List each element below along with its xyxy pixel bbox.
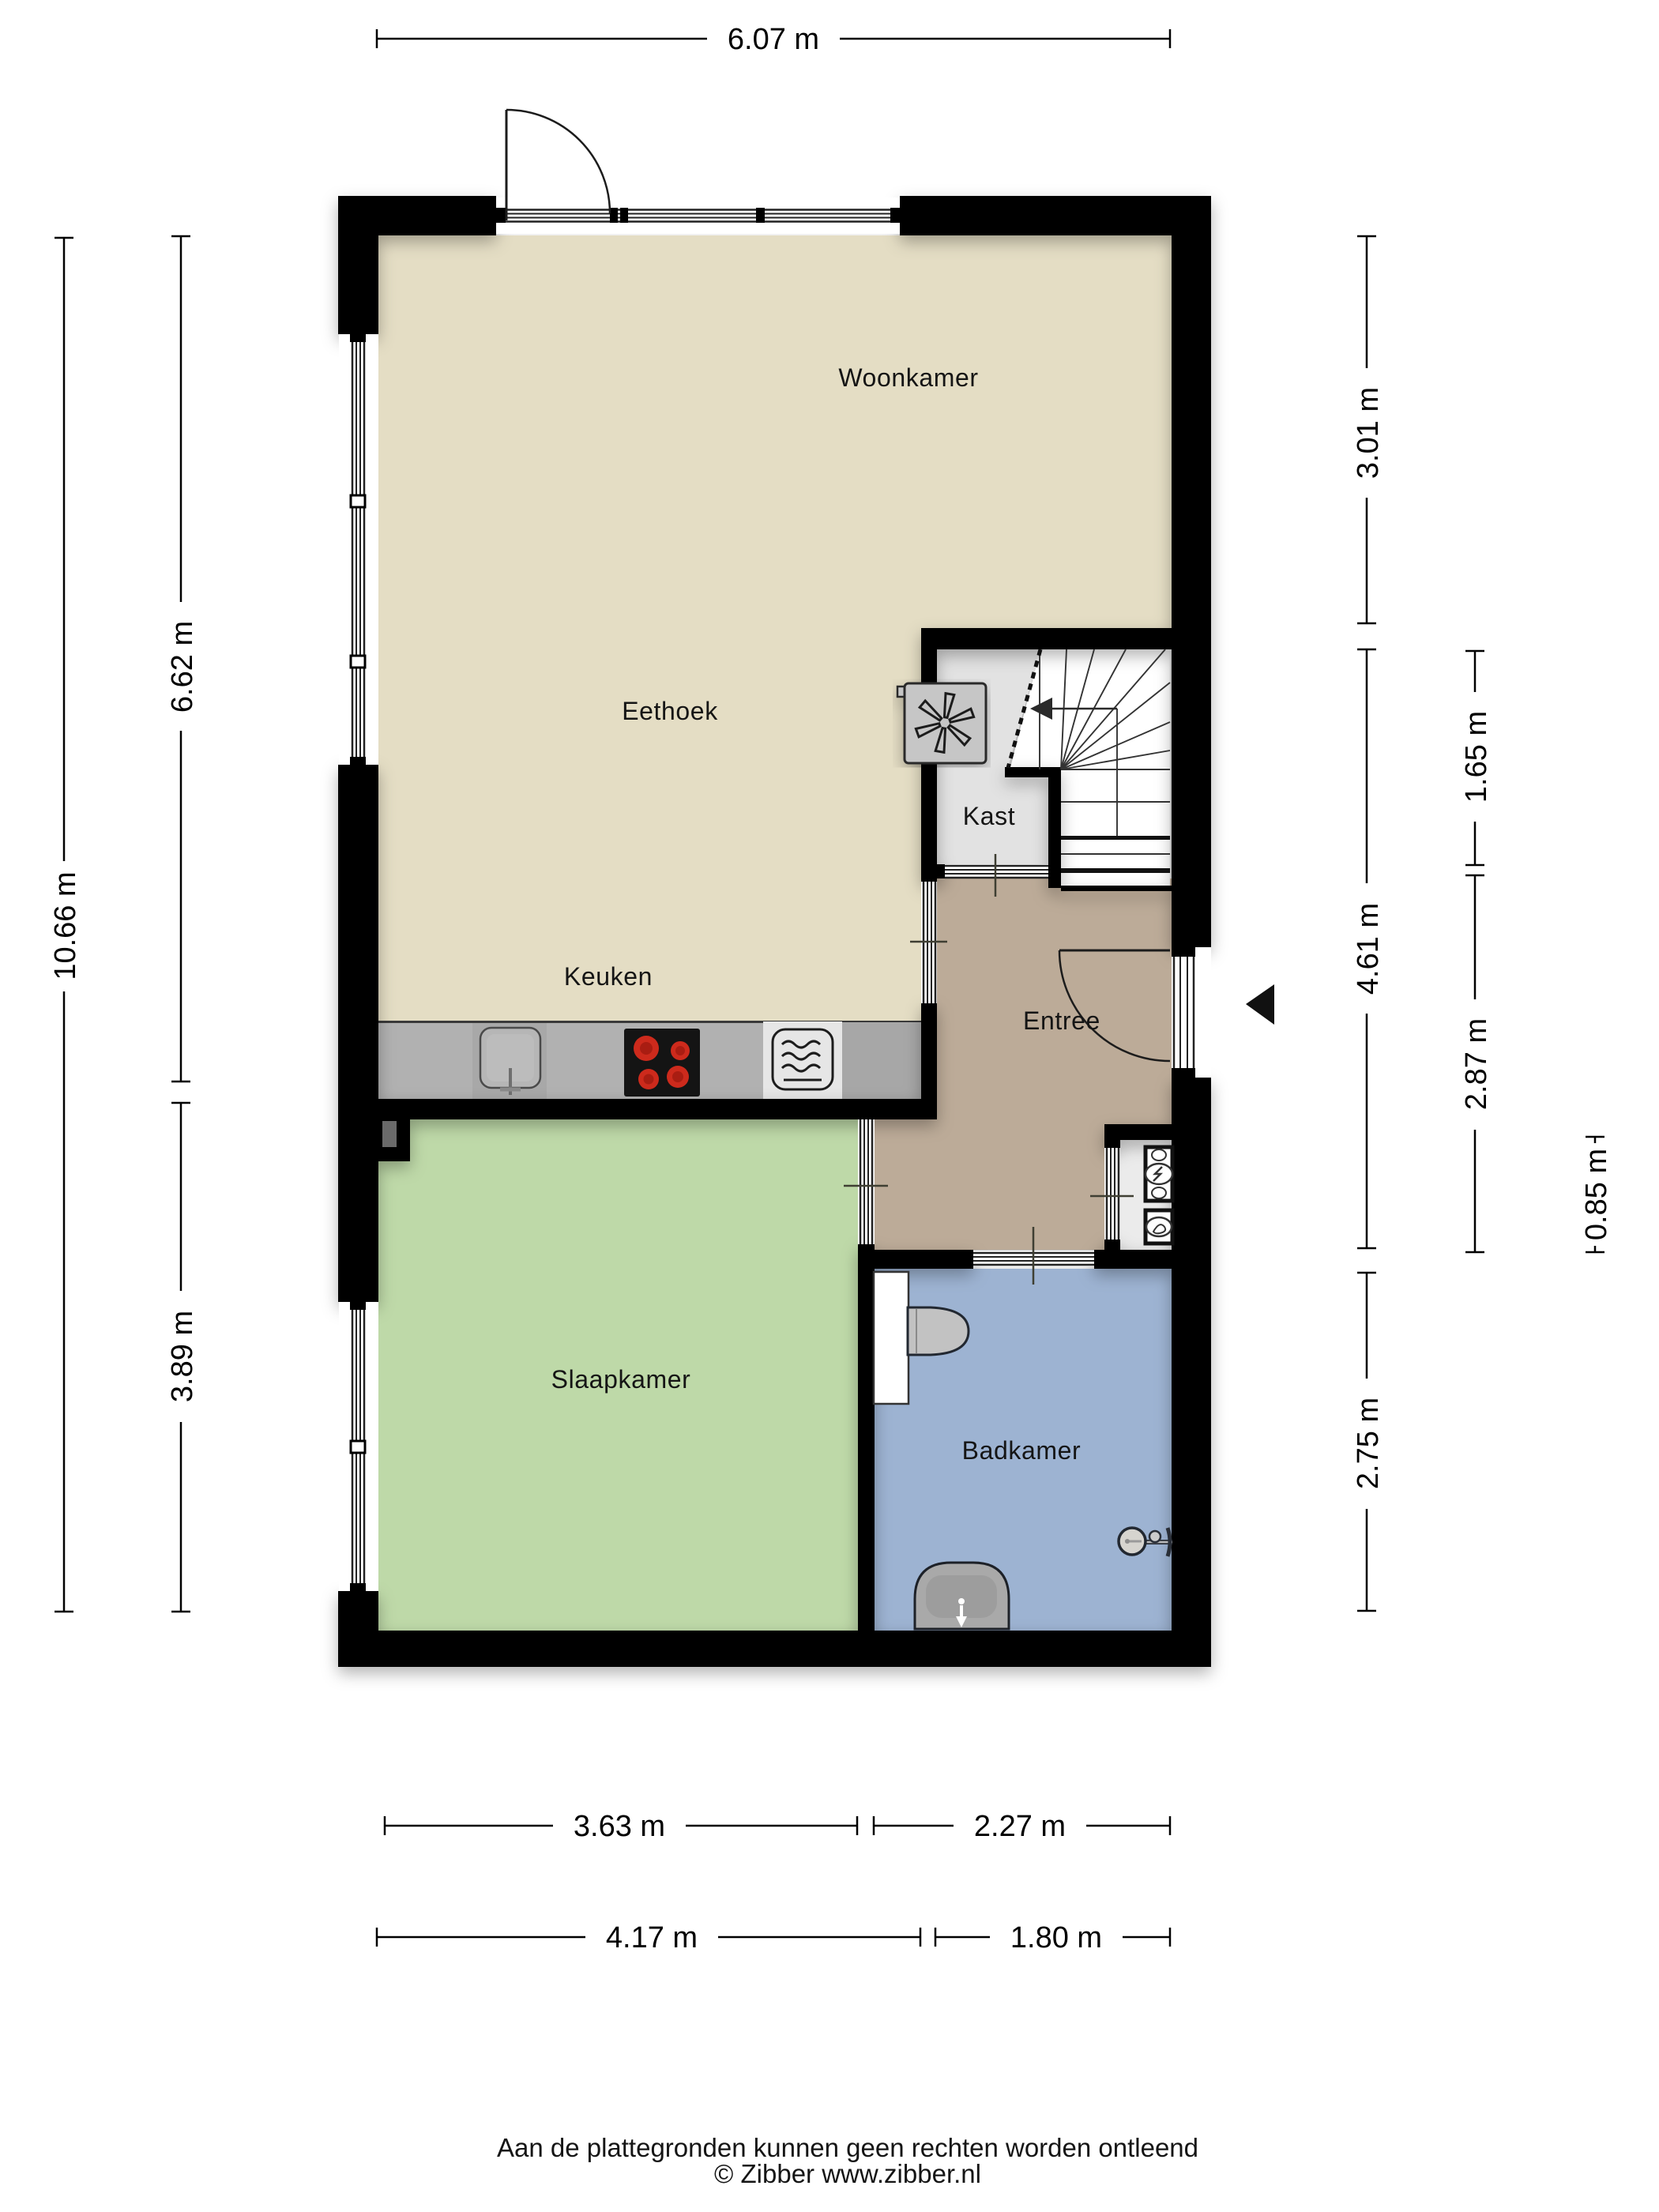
svg-text:4.61 m: 4.61 m [1352, 903, 1385, 995]
svg-text:Badkamer: Badkamer [962, 1436, 1082, 1465]
svg-text:Keuken: Keuken [564, 962, 653, 991]
svg-text:3.63 m: 3.63 m [574, 1810, 665, 1843]
svg-text:6.62 m: 6.62 m [166, 621, 199, 713]
svg-text:3.01 m: 3.01 m [1352, 387, 1385, 479]
svg-text:Entree: Entree [1023, 1006, 1100, 1035]
svg-text:Aan de plattegronden kunnen ge: Aan de plattegronden kunnen geen rechten… [497, 2133, 1198, 2162]
svg-text:Woonkamer: Woonkamer [838, 363, 978, 392]
svg-text:1.80 m: 1.80 m [1010, 1921, 1102, 1954]
svg-text:3.89 m: 3.89 m [166, 1311, 199, 1402]
svg-text:© Zibber www.zibber.nl: © Zibber www.zibber.nl [714, 2159, 981, 2188]
svg-text:1.65 m: 1.65 m [1460, 711, 1493, 803]
svg-text:10.66 m: 10.66 m [49, 871, 82, 980]
svg-text:2.27 m: 2.27 m [974, 1810, 1066, 1843]
svg-text:Slaapkamer: Slaapkamer [551, 1365, 691, 1394]
svg-text:0.85 m: 0.85 m [1580, 1149, 1613, 1240]
svg-text:Eethoek: Eethoek [622, 697, 718, 725]
svg-text:Kast: Kast [963, 802, 1015, 830]
svg-text:2.87 m: 2.87 m [1460, 1018, 1493, 1110]
svg-text:6.07 m: 6.07 m [728, 23, 819, 56]
svg-text:2.75 m: 2.75 m [1352, 1398, 1385, 1489]
svg-text:4.17 m: 4.17 m [606, 1921, 698, 1954]
